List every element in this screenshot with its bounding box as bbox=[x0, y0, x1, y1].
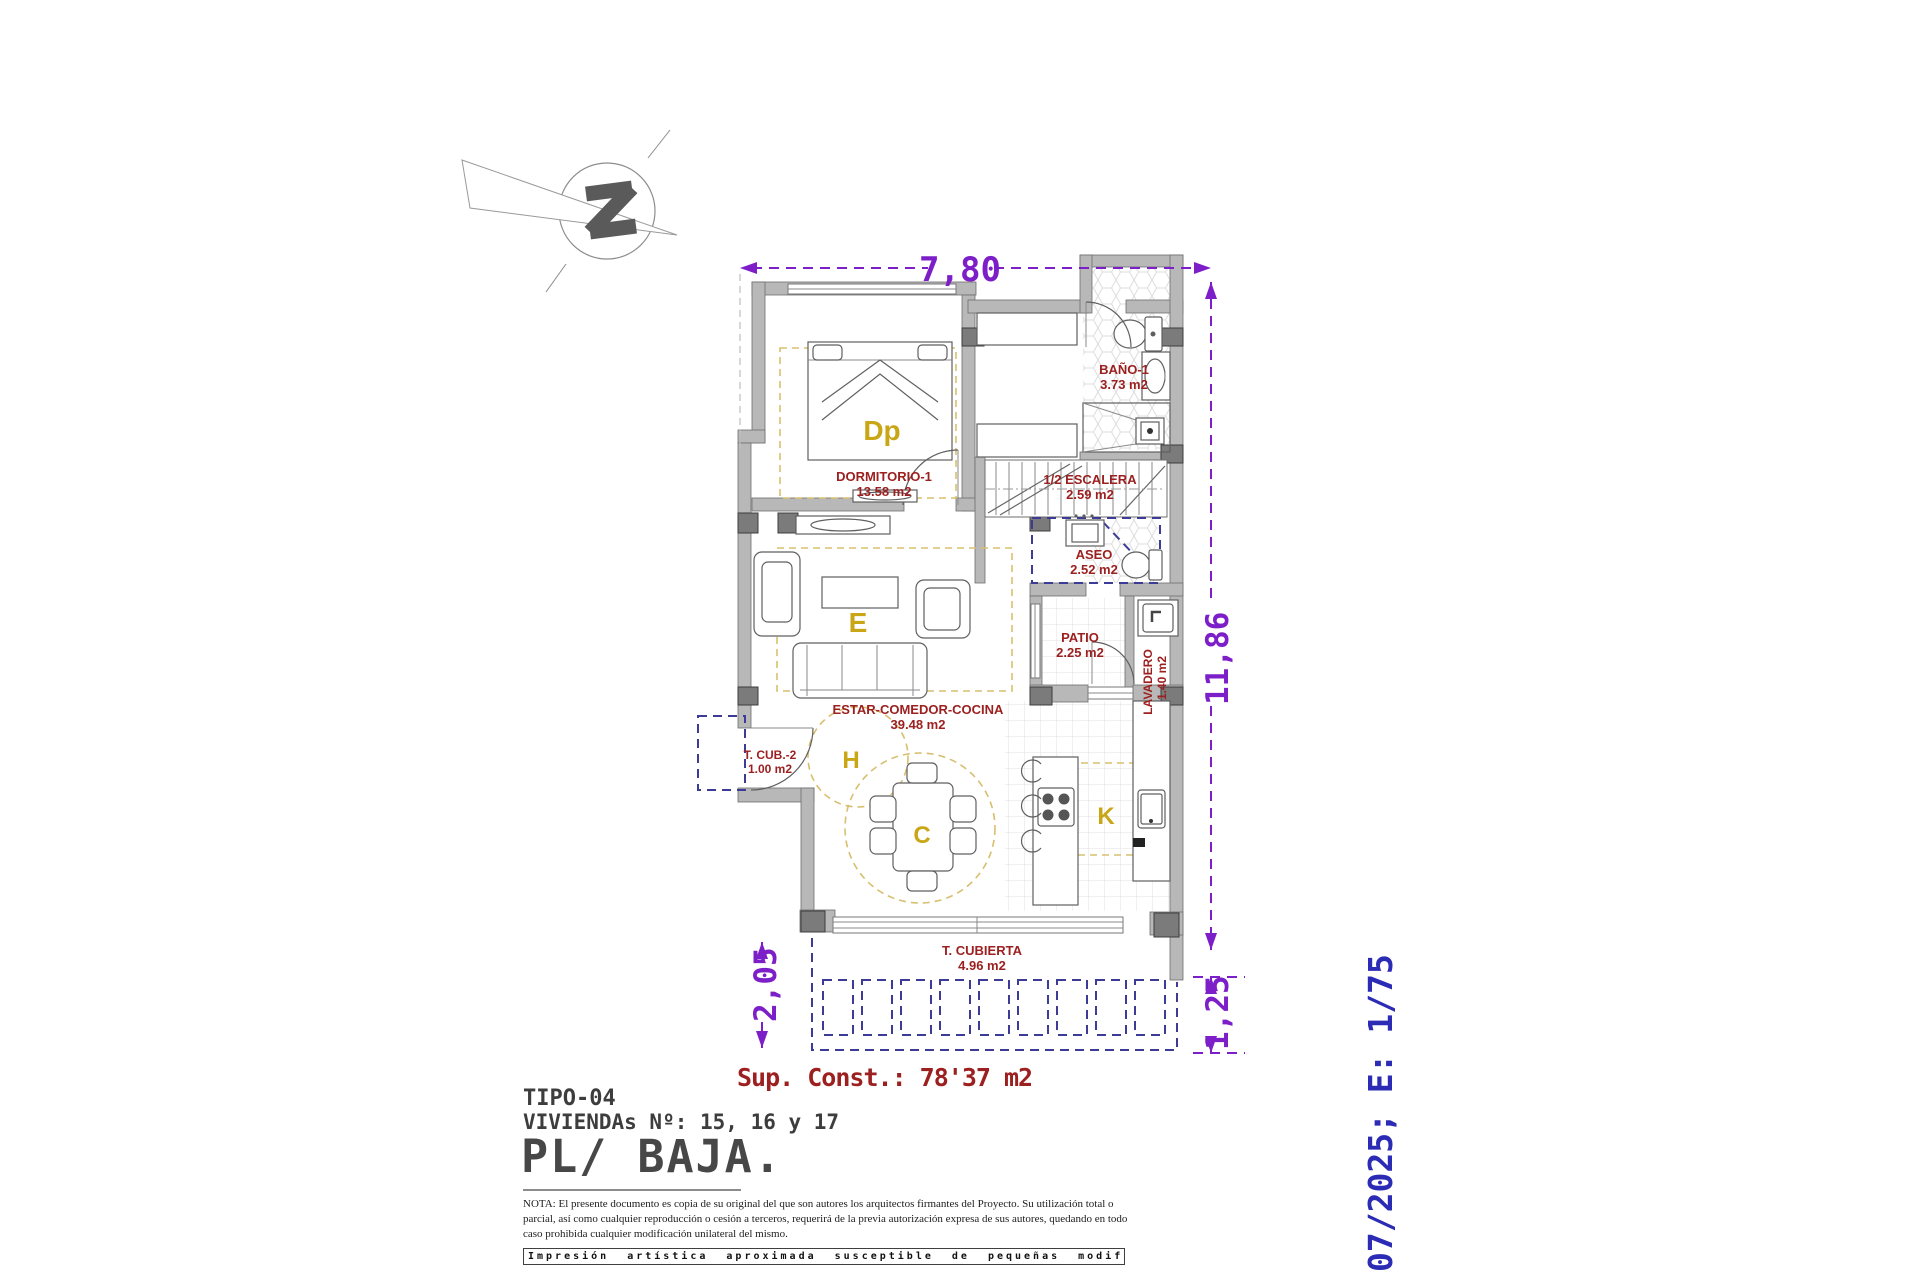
sup-const-label: Sup. Const.: 78'37 m2 bbox=[737, 1063, 1032, 1092]
south-sliding-window bbox=[833, 917, 1123, 933]
label-patio: PATIO bbox=[1061, 630, 1099, 645]
label-dormitorio-area: 13.58 m2 bbox=[857, 484, 912, 499]
floorplan-drawing: 7,80 11,86 2,05 1,25 DORMITORIO-1 13.58 … bbox=[0, 0, 1920, 1280]
label-bano-area: 3.73 m2 bbox=[1100, 377, 1148, 392]
label-dormitorio: DORMITORIO-1 bbox=[836, 469, 932, 484]
tag-dormitorio: Dp bbox=[863, 415, 900, 446]
lavadero-fixtures bbox=[1138, 600, 1178, 636]
label-tcub2: T. CUB.-2 bbox=[744, 748, 797, 762]
label-estar-area: 39.48 m2 bbox=[891, 717, 946, 732]
label-tcub2-area: 1.00 m2 bbox=[748, 762, 792, 776]
label-escalera: 1/2 ESCALERA bbox=[1043, 472, 1137, 487]
stove-icon bbox=[1038, 788, 1074, 826]
tag-kitchen: K bbox=[1097, 803, 1115, 830]
sofa-icon bbox=[793, 643, 927, 698]
living-furniture bbox=[754, 516, 1012, 698]
dim-bottom-right: 1,25 bbox=[1200, 975, 1236, 1050]
impresion-disclaimer: Impresión artística aproximada susceptib… bbox=[523, 1248, 1125, 1265]
tag-dining: C bbox=[913, 822, 930, 849]
north-arrow-icon bbox=[462, 130, 677, 292]
tv-unit-icon bbox=[796, 516, 890, 534]
patio-window-left bbox=[1031, 604, 1040, 678]
dim-bottom-left: 2,05 bbox=[748, 947, 784, 1022]
aseo-toilet-icon bbox=[1122, 550, 1162, 580]
coffee-table-icon bbox=[822, 577, 898, 608]
tag-living: E bbox=[849, 607, 868, 638]
label-aseo-area: 2.52 m2 bbox=[1070, 562, 1118, 577]
date-scale-label: 07/2025; E: 1/75 bbox=[1361, 954, 1400, 1272]
toilet-icon bbox=[1114, 317, 1162, 351]
floorplan-sheet: 7,80 11,86 2,05 1,25 DORMITORIO-1 13.58 … bbox=[0, 0, 1920, 1280]
label-tcubierta-area: 4.96 m2 bbox=[958, 958, 1006, 973]
label-estar: ESTAR-COMEDOR-COCINA bbox=[833, 702, 1005, 717]
label-tcubierta: T. CUBIERTA bbox=[942, 943, 1023, 958]
dim-right: 11,86 bbox=[1200, 612, 1236, 705]
label-lavadero: LAVADERO bbox=[1141, 649, 1155, 715]
armchair-icon bbox=[916, 580, 970, 638]
label-aseo: ASEO bbox=[1076, 547, 1113, 562]
title-tipo: TIPO-04 bbox=[523, 1086, 616, 1111]
tag-hall: H bbox=[842, 747, 859, 774]
armchair-icon bbox=[754, 552, 800, 636]
patio-window-bottom bbox=[1088, 687, 1133, 699]
label-lavadero-area: 1.40 m2 bbox=[1155, 656, 1169, 700]
label-patio-area: 2.25 m2 bbox=[1056, 645, 1104, 660]
title-planta: PL/ BAJA. bbox=[521, 1130, 783, 1183]
kitchen-sink-icon bbox=[1138, 790, 1165, 828]
label-escalera-area: 2.59 m2 bbox=[1066, 487, 1114, 502]
oven-icon bbox=[1133, 838, 1145, 847]
label-bano: BAÑO-1 bbox=[1099, 362, 1149, 377]
title-rule bbox=[523, 1189, 741, 1191]
dim-top: 7,80 bbox=[919, 250, 1001, 290]
nota-text: NOTA: El presente documento es copia de … bbox=[523, 1197, 1141, 1242]
